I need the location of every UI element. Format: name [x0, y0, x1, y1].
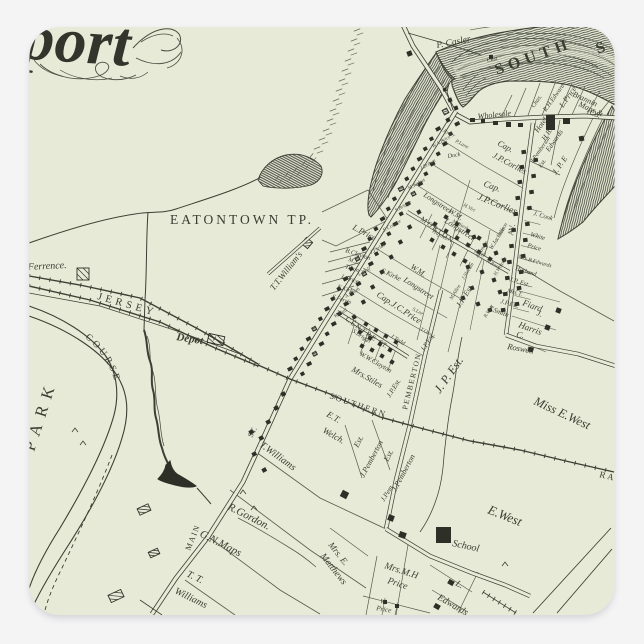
svg-text:Ferrence.: Ferrence.	[27, 260, 67, 273]
svg-text:EATONTOWN TP.: EATONTOWN TP.	[170, 212, 314, 227]
